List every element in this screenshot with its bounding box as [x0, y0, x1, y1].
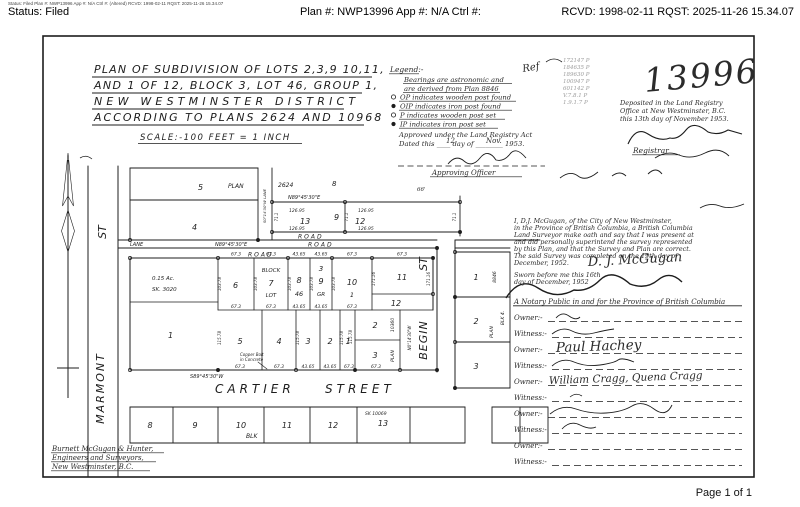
- measurement: 67.3: [347, 252, 357, 258]
- lot-word: LOT: [266, 293, 277, 299]
- north-arrow-icon: [57, 153, 92, 398]
- owner-label: Owner:-: [514, 314, 543, 322]
- block-word: BLOCK: [262, 268, 281, 274]
- measurement: 43.65: [315, 304, 328, 310]
- measurement: 103.78: [331, 277, 336, 291]
- group-word: GR: [317, 292, 325, 298]
- measurement: 103.78: [287, 277, 292, 291]
- plan-word-label: PLAN: [228, 183, 244, 190]
- lot-number: 13: [300, 217, 310, 226]
- bearing-label: N89°45'30"E: [288, 195, 321, 201]
- lot-number: 9: [192, 421, 197, 430]
- plan-8-label: 8: [332, 180, 337, 188]
- survey-map: ST MARMONT 5 PLAN 4 S0°14'30"W LANE 2624…: [88, 166, 548, 477]
- approval-line-1: Approved under the Land Registry Act: [398, 131, 532, 139]
- legend-open-post-icon: [391, 95, 395, 99]
- witness-signature-scribble: [570, 394, 582, 397]
- ref-number: V.7.8.1 P: [563, 93, 588, 99]
- legend-filled-post-icon: [391, 104, 395, 108]
- owner-signature-scribble: [556, 314, 580, 319]
- lane-label: LANE: [130, 242, 144, 248]
- block-3-label: 3: [319, 265, 323, 273]
- street-label-cartier: CARTIER: [215, 382, 295, 396]
- ref-number: 189630 P: [563, 72, 590, 78]
- approving-officer-signature: [448, 151, 526, 164]
- affidavit-block: I, D.J. McGugan, of the City of New West…: [506, 217, 742, 306]
- firm-line-2: Engineers and Surveyors,: [51, 454, 144, 462]
- lot-number: 5: [198, 183, 203, 192]
- ref-number: 1.9.1.7 P: [563, 100, 588, 106]
- measurement: 115.78: [339, 331, 344, 345]
- measurement: 43.65: [302, 364, 315, 370]
- faint-pencil-marks: [560, 170, 662, 178]
- acreage-label: 0.15 Ac.: [152, 276, 175, 282]
- measurement: 71.1: [344, 213, 349, 222]
- firm-block: Burnett McGugan & Hunter, Engineers and …: [51, 445, 164, 471]
- measurement: 67.3: [344, 364, 354, 370]
- street-label-street: STREET: [325, 382, 395, 396]
- owner-signature-scribble: [550, 404, 672, 414]
- measurement: 103.78: [253, 277, 258, 291]
- street-label-st: ST: [417, 256, 430, 271]
- legend-item-3: P indicates wooden post set: [399, 112, 496, 120]
- measurement: 71.1: [452, 213, 457, 222]
- plan-8846-label: 8846: [492, 271, 498, 283]
- legend-filled-post-icon: [391, 122, 395, 126]
- measurement: 71.1: [274, 213, 279, 222]
- owner-label: Owner:-: [514, 410, 543, 418]
- deposit-line-1: Deposited in the Land Registry: [619, 99, 723, 107]
- measurement: 67.3: [266, 252, 276, 258]
- measurement: 43.65: [324, 364, 337, 370]
- handwritten-66: 66': [417, 187, 426, 193]
- lot-number: 9: [318, 277, 323, 286]
- lot-number: 1: [168, 331, 173, 340]
- lot-number: 8: [296, 276, 301, 285]
- document-viewer-page: Status: Filed Plan #: NWP13996 App #: N/…: [0, 0, 800, 507]
- sworn-line-2: day of December, 1952: [514, 278, 589, 286]
- lane-bearing-vertical: S0°14'30"W LANE: [262, 188, 267, 223]
- lot-number: 3: [305, 337, 310, 346]
- legend-heading: Legend:-: [389, 65, 424, 74]
- measurement: 126.95: [289, 208, 305, 214]
- witness-label: Witness:-: [514, 394, 547, 402]
- lot-46-label: 46: [295, 290, 303, 298]
- title-line-4: ACCORDING TO PLANS 2624 AND 10968: [93, 111, 383, 124]
- measurement: 67.3: [231, 252, 241, 258]
- reference-stamp: Ref 172147 P 184635 P 189630 P 100947 P …: [521, 58, 590, 106]
- title-scale: SCALE:-100 FEET = 1 INCH: [140, 133, 291, 143]
- lot-number: 13: [378, 419, 388, 428]
- plan-word-label: PLAN: [489, 326, 495, 338]
- bearing-label: S89°45'30"W: [190, 374, 224, 380]
- legend-item-1: OP indicates wooden post found: [400, 94, 512, 102]
- firm-line-3: New Westminster, B.C.: [51, 463, 133, 471]
- lot-number: 10: [236, 421, 246, 430]
- lot-number: 2: [473, 317, 478, 326]
- ref-number: 601142 P: [563, 86, 590, 92]
- deposit-line-2: Office at New Westminster, B.C.: [620, 107, 726, 115]
- lot-number: 11: [397, 273, 407, 282]
- witness-signature-scribble: [552, 359, 634, 366]
- bearing-label: N89°45'30"E: [215, 242, 248, 248]
- page-indicator: Page 1 of 1: [696, 487, 752, 499]
- legend-block: Legend:- Bearings are astronomic and are…: [389, 65, 516, 129]
- title-line-3: NEW WESTMINSTER DISTRICT: [94, 95, 359, 108]
- legend-item-4: IP indicates iron post set: [399, 121, 486, 129]
- lot-number: 11: [282, 421, 292, 430]
- witness-signature-scribble: [552, 329, 614, 334]
- south-block: 8 9 10 11 12 13 SK 10069 BLK: [130, 407, 548, 443]
- street-label-st: ST: [96, 224, 109, 239]
- street-label-begin: BEGIN: [417, 320, 430, 360]
- lot-number: 8: [147, 421, 152, 430]
- measurement: 67.3: [347, 304, 357, 310]
- lot-number: 2: [327, 337, 332, 346]
- owner-signature-cragg: William Cragg, Quena Cragg: [549, 370, 703, 387]
- block-label: BLK: [246, 433, 258, 440]
- title-line-1: PLAN OF SUBDIVISION OF LOTS 2,3,9 10,11,: [94, 63, 385, 76]
- witness-label: Witness:-: [514, 426, 547, 434]
- title-block: PLAN OF SUBDIVISION OF LOTS 2,3,9 10,11,…: [92, 63, 385, 144]
- owner-label: Owner:-: [514, 378, 543, 386]
- approving-officer-label: Approving Officer: [431, 169, 496, 177]
- measurement: 115.78: [295, 331, 300, 345]
- sketch-label: SK 10069: [365, 411, 387, 417]
- legend-item-2: OIP indicates iron post found: [400, 103, 502, 111]
- measurement: 126.95: [358, 226, 374, 232]
- owner-signature-paul-hachey: Paul Hachey: [555, 337, 642, 356]
- lot-number: 3: [473, 362, 478, 371]
- lot-number: 12: [355, 217, 365, 226]
- deposit-block: 13996 Deposited in the Land Registry Off…: [619, 51, 760, 155]
- faint-lot-number: 9: [334, 213, 339, 222]
- measurement: 43.65: [293, 304, 306, 310]
- plan-word-label: PLAN: [390, 350, 396, 362]
- approval-line-2: Dated this ____ day of ________ 1953.: [398, 140, 524, 148]
- approval-month-handwritten: Nov.: [485, 137, 502, 145]
- ref-number: 184635 P: [563, 65, 590, 71]
- cartier-street: S89°45'30"W CARTIER STREET: [190, 374, 395, 396]
- copper-bolt-note: in Concrete: [240, 357, 264, 362]
- road-label: ROAD: [298, 234, 324, 241]
- lot-number: 12: [391, 299, 401, 308]
- measurement: 126.95: [289, 226, 305, 232]
- lot-number: 7: [268, 279, 274, 288]
- main-block: 0.15 Ac. SK. 3020 1 6 BLOCK 7 LOT 8 46: [130, 252, 437, 371]
- legend-bearings-2: are derived from Plan 8846: [404, 85, 499, 93]
- witness-label: Witness:-: [514, 330, 547, 338]
- sketch-label: SK. 3020: [152, 287, 177, 293]
- ref-number: 172147 P: [563, 58, 590, 64]
- measurement: 67.3: [371, 364, 381, 370]
- firm-line-1: Burnett McGugan & Hunter,: [51, 445, 153, 453]
- measurement: 67.3: [235, 364, 245, 370]
- lot-number: 1: [473, 273, 478, 282]
- witness-label: Witness:-: [514, 458, 547, 466]
- measurement: 115.78: [217, 331, 222, 345]
- measurement: 115.78: [348, 330, 353, 344]
- plan-number-handwritten: 13996: [642, 51, 760, 100]
- measurement: 67.3: [231, 304, 241, 310]
- east-block: 1 2 3 8846 PLAN BLK 4.: [455, 252, 510, 388]
- lot-number: 4: [192, 223, 197, 232]
- northeast-block: N89°45'30"E 126.95 126.95 126.95 126.95 …: [272, 187, 460, 236]
- faint-pencil-marks: [700, 204, 744, 208]
- lot-number: 4: [276, 337, 281, 346]
- affidavit-line: December, 1952.: [513, 259, 569, 267]
- measurement: 67.3: [266, 304, 276, 310]
- block-4-label: BLK 4.: [500, 311, 506, 325]
- bearing-label: N0°14'30"W: [407, 325, 412, 351]
- notary-label: A Notary Public in and for the Province …: [513, 298, 725, 306]
- scanned-survey-plan: PLAN OF SUBDIVISION OF LOTS 2,3,9 10,11,…: [0, 0, 800, 507]
- street-label-marmont: MARMONT: [94, 352, 107, 424]
- road-corridor: LANE N89°45'30"E ROAD ROAD ROAD: [118, 234, 540, 259]
- deposit-line-3: this 13th day of November 1953.: [620, 115, 729, 123]
- measurement: 67.3: [274, 364, 284, 370]
- north-block: 5 PLAN 4 S0°14'30"W LANE 2624 8: [130, 168, 337, 240]
- title-line-2: AND 1 OF 12, BLOCK 3, LOT 46, GROUP 1,: [93, 79, 378, 92]
- measurement: 171.16: [426, 272, 431, 286]
- ref-handwriting: Ref: [521, 61, 543, 75]
- ref-number: 100947 P: [563, 79, 590, 85]
- marmont-street: ST MARMONT: [88, 166, 118, 477]
- lot-number: 2: [372, 321, 377, 330]
- witness-label: Witness:-: [514, 362, 547, 370]
- legend-open-post-icon: [391, 113, 395, 117]
- plan-2624-label: 2624: [278, 182, 293, 189]
- lot-number: 3: [372, 351, 377, 360]
- owner-label: Owner:-: [514, 346, 543, 354]
- begin-street: ST BEGIN: [417, 240, 455, 388]
- measurement: 171.16: [371, 272, 376, 286]
- approval-day-handwritten: 12: [446, 137, 455, 145]
- measurement: 43.65: [315, 252, 328, 258]
- lot-number: 5: [237, 337, 242, 346]
- measurement: 126.95: [358, 208, 374, 214]
- registrar-signature: [628, 125, 742, 144]
- approval-block: Approved under the Land Registry Act Dat…: [398, 131, 744, 208]
- road-label: ROAD: [308, 242, 334, 249]
- measurement: 67.3: [397, 252, 407, 258]
- measurement: 103.78: [309, 277, 314, 291]
- group-1-label: 1: [350, 291, 354, 299]
- lot-number: 10: [347, 278, 357, 287]
- lot-number: 12: [328, 421, 338, 430]
- lot-number: 6: [233, 281, 238, 290]
- plan-10360-label: 10360: [390, 318, 396, 332]
- measurement: 43.65: [293, 252, 306, 258]
- measurement: 103.78: [217, 277, 222, 291]
- legend-bearings-1: Bearings are astronomic and: [403, 76, 504, 84]
- witness-signature-scribble: [562, 423, 596, 429]
